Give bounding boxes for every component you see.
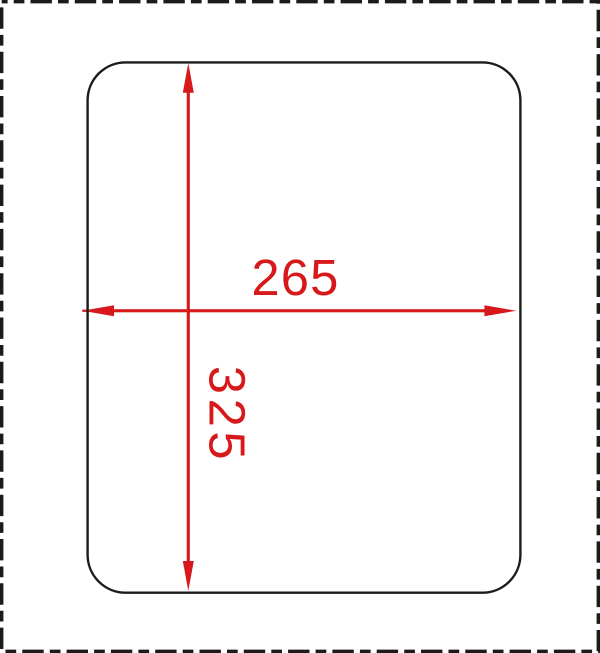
svg-text:325: 325 [199,366,256,460]
svg-text:265: 265 [251,249,338,306]
